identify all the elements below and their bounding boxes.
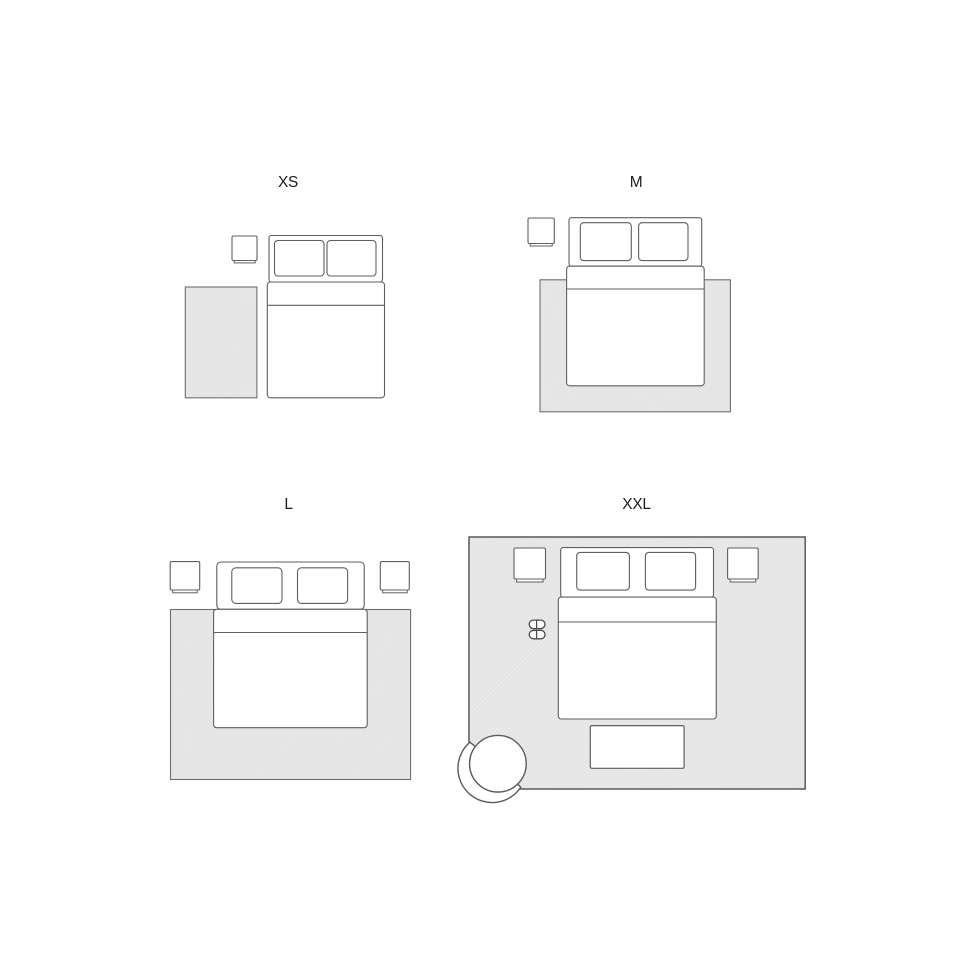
svg-text:L: L — [284, 496, 293, 513]
svg-text:XS: XS — [278, 174, 298, 191]
svg-text:XXL: XXL — [622, 496, 651, 513]
svg-text:M: M — [630, 174, 643, 191]
